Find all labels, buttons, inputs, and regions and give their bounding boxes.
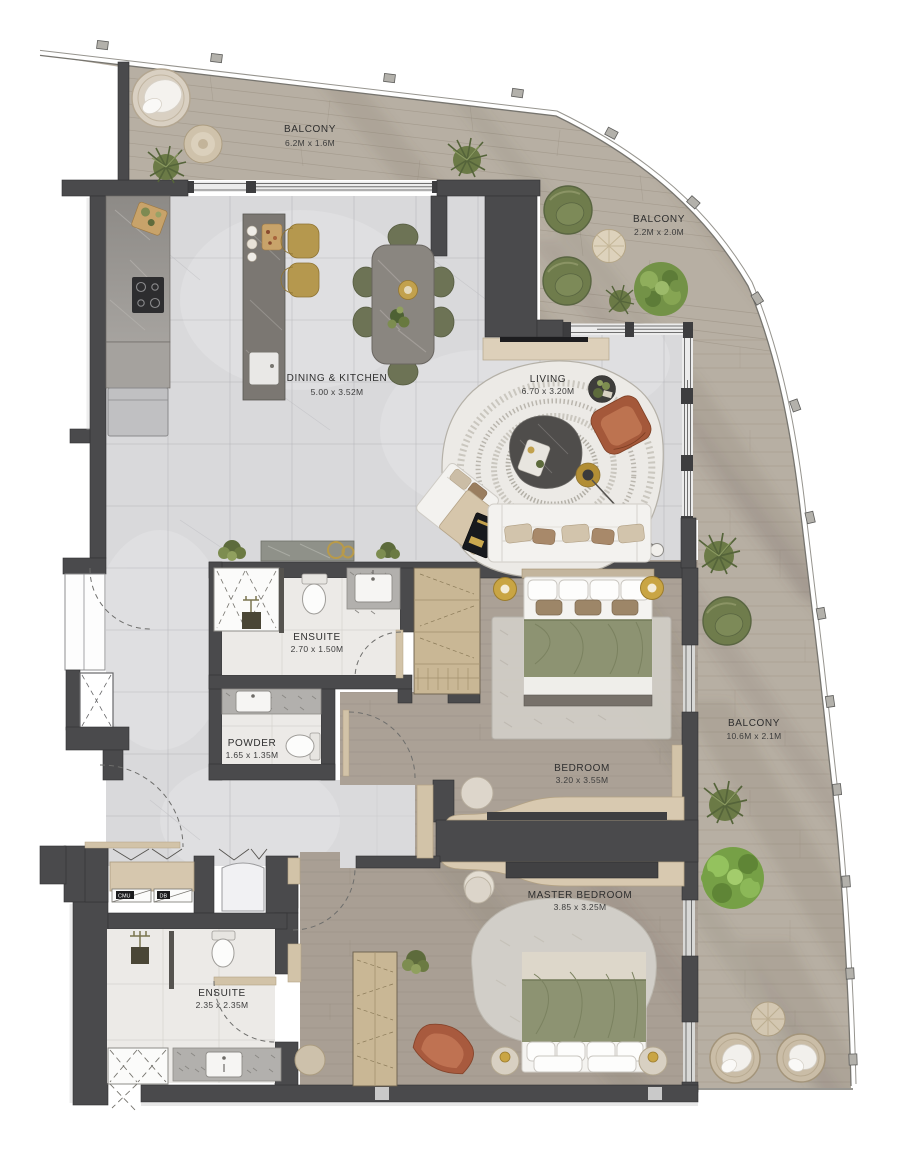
- svg-text:ENSUITE: ENSUITE: [198, 988, 246, 999]
- svg-text:2.2M x 2.0M: 2.2M x 2.0M: [634, 227, 684, 237]
- svg-text:1.65 x 1.35M: 1.65 x 1.35M: [226, 750, 279, 760]
- svg-text:3.20 x 3.55M: 3.20 x 3.55M: [556, 775, 609, 785]
- svg-text:POWDER: POWDER: [228, 738, 277, 749]
- svg-text:DINING & KITCHEN: DINING & KITCHEN: [287, 373, 388, 384]
- svg-text:BALCONY: BALCONY: [284, 124, 336, 135]
- svg-text:5.00 x 3.52M: 5.00 x 3.52M: [311, 387, 364, 397]
- svg-text:10.6M x 2.1M: 10.6M x 2.1M: [726, 731, 781, 741]
- svg-text:BALCONY: BALCONY: [728, 718, 780, 729]
- svg-text:2.35 x 2.35M: 2.35 x 2.35M: [196, 1000, 249, 1010]
- svg-text:3.85 x 3.25M: 3.85 x 3.25M: [554, 902, 607, 912]
- svg-text:6.2M x 1.6M: 6.2M x 1.6M: [285, 138, 335, 148]
- svg-text:BEDROOM: BEDROOM: [554, 763, 610, 774]
- svg-text:ENSUITE: ENSUITE: [293, 632, 341, 643]
- svg-text:DB: DB: [160, 894, 168, 900]
- svg-text:MASTER BEDROOM: MASTER BEDROOM: [528, 890, 633, 901]
- svg-text:6.70 x 3.20M: 6.70 x 3.20M: [522, 386, 575, 396]
- svg-text:2.70 x 1.50M: 2.70 x 1.50M: [291, 644, 344, 654]
- svg-text:LIVING: LIVING: [530, 374, 566, 385]
- svg-text:CMU: CMU: [118, 894, 131, 900]
- svg-text:BALCONY: BALCONY: [633, 214, 685, 225]
